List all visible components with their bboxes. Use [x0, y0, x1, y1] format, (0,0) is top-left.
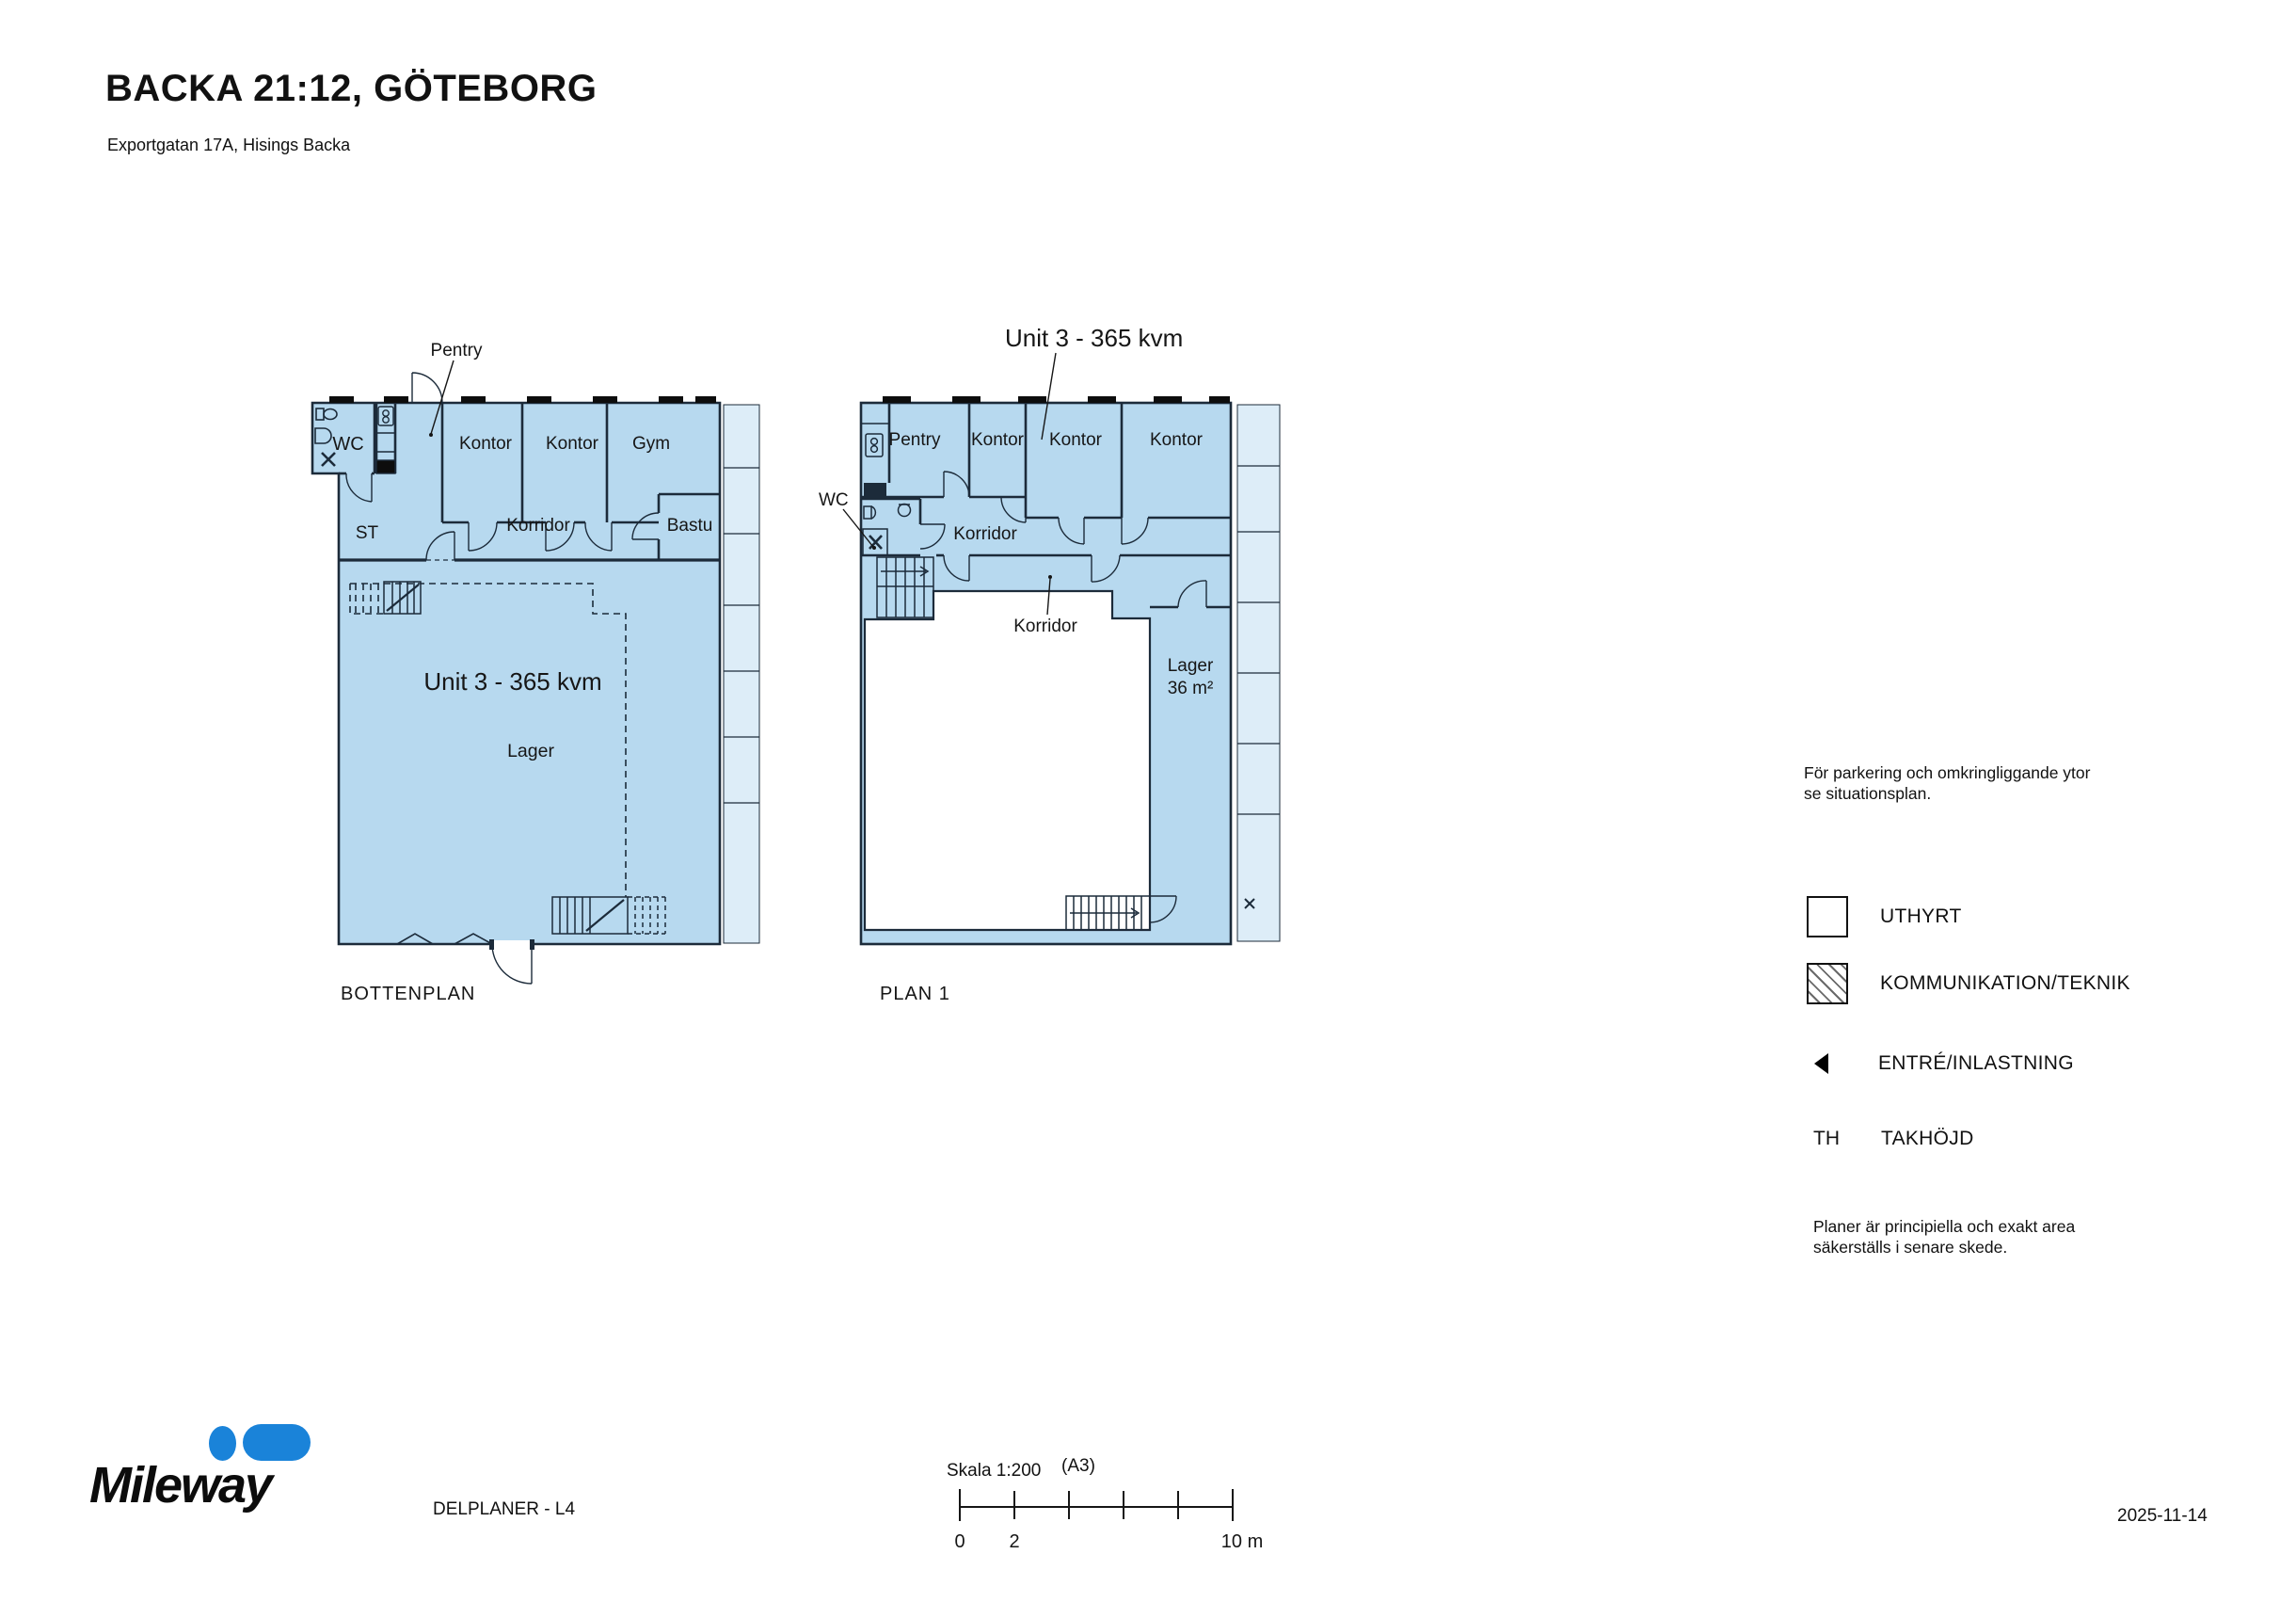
uthyrt-swatch — [1807, 896, 1848, 937]
takhojd-abbr: TH — [1813, 1128, 1840, 1150]
scale-tick-10: 10 m — [1221, 1531, 1263, 1552]
plan1-adjacent-strip — [1237, 405, 1280, 941]
document-label: DELPLANER - L4 — [433, 1499, 575, 1520]
plan1-drawing: WC Pentry Kontor Kontor Kontor Korridor … — [809, 334, 1289, 1031]
kommunikation-label: KOMMUNIKATION/TEKNIK — [1880, 972, 2130, 995]
plan1-caption: PLAN 1 — [880, 984, 950, 1004]
room-label-wc: WC — [819, 490, 849, 510]
entre-arrow-icon — [1814, 1053, 1828, 1074]
scale-bar: 0 2 10 m — [941, 1476, 1280, 1561]
legend-item-kommunikation: KOMMUNIKATION/TEKNIK — [1807, 963, 2130, 1004]
page-title: BACKA 21:12, GÖTEBORG — [105, 68, 597, 110]
room-label-lager: Lager — [507, 741, 554, 761]
unit-area-label: Unit 3 - 365 kvm — [423, 667, 601, 696]
scale-tick-2: 2 — [1009, 1531, 1019, 1552]
legend-item-uthyrt: UTHYRT — [1807, 896, 1962, 937]
sheet-format: (A3) — [1061, 1456, 1095, 1477]
bottenplan-drawing: Pentry WC Kontor Kontor Gym ST Korridor … — [301, 334, 772, 1031]
room-label-korridor-lower: Korridor — [1013, 617, 1077, 636]
appliance — [376, 460, 395, 473]
wall-stub — [864, 483, 886, 499]
room-label-kontor-3: Kontor — [1150, 430, 1204, 450]
mileway-logo-text: Mileway — [89, 1456, 271, 1514]
room-label-bastu: Bastu — [667, 516, 713, 536]
scale-tick-0: 0 — [954, 1531, 965, 1552]
room-label-korridor-upper: Korridor — [953, 524, 1017, 544]
room-label-st: ST — [356, 523, 379, 543]
area-disclaimer: Planer är principiella och exakt area sä… — [1813, 1216, 2096, 1258]
page-subtitle: Exportgatan 17A, Hisings Backa — [107, 136, 350, 155]
room-label-pentry: Pentry — [889, 430, 941, 450]
void-open-to-below — [865, 591, 1150, 930]
uthyrt-label: UTHYRT — [1880, 905, 1962, 928]
room-label-wc: WC — [332, 434, 363, 455]
entrance-door — [489, 939, 534, 984]
room-label-kontor-2: Kontor — [546, 434, 599, 454]
pentry-exterior-door — [412, 373, 442, 403]
scale-ticks — [960, 1489, 1233, 1521]
room-label-kontor-1: Kontor — [971, 430, 1025, 450]
date: 2025-11-14 — [2117, 1506, 2208, 1527]
room-label-gym: Gym — [632, 434, 670, 454]
entre-label: ENTRÉ/INLASTNING — [1878, 1052, 2074, 1075]
room-label-lager-area: 36 m² — [1168, 679, 1214, 698]
takhojd-label: TAKHÖJD — [1881, 1128, 1974, 1150]
parking-note: För parkering och omkringliggande ytor s… — [1804, 762, 2105, 805]
kommunikation-swatch — [1807, 963, 1848, 1004]
legend-item-takhojd: TH TAKHÖJD — [1813, 1128, 1974, 1150]
mileway-logo: Mileway — [89, 1417, 391, 1530]
bottenplan-caption: BOTTENPLAN — [341, 984, 475, 1004]
room-label-lager: Lager — [1168, 656, 1214, 676]
room-label-kontor-1: Kontor — [459, 434, 513, 454]
room-label-kontor-2: Kontor — [1049, 430, 1103, 450]
room-label-pentry: Pentry — [431, 341, 483, 360]
room-label-korridor: Korridor — [506, 516, 570, 536]
legend-item-entre: ENTRÉ/INLASTNING — [1814, 1052, 2074, 1075]
